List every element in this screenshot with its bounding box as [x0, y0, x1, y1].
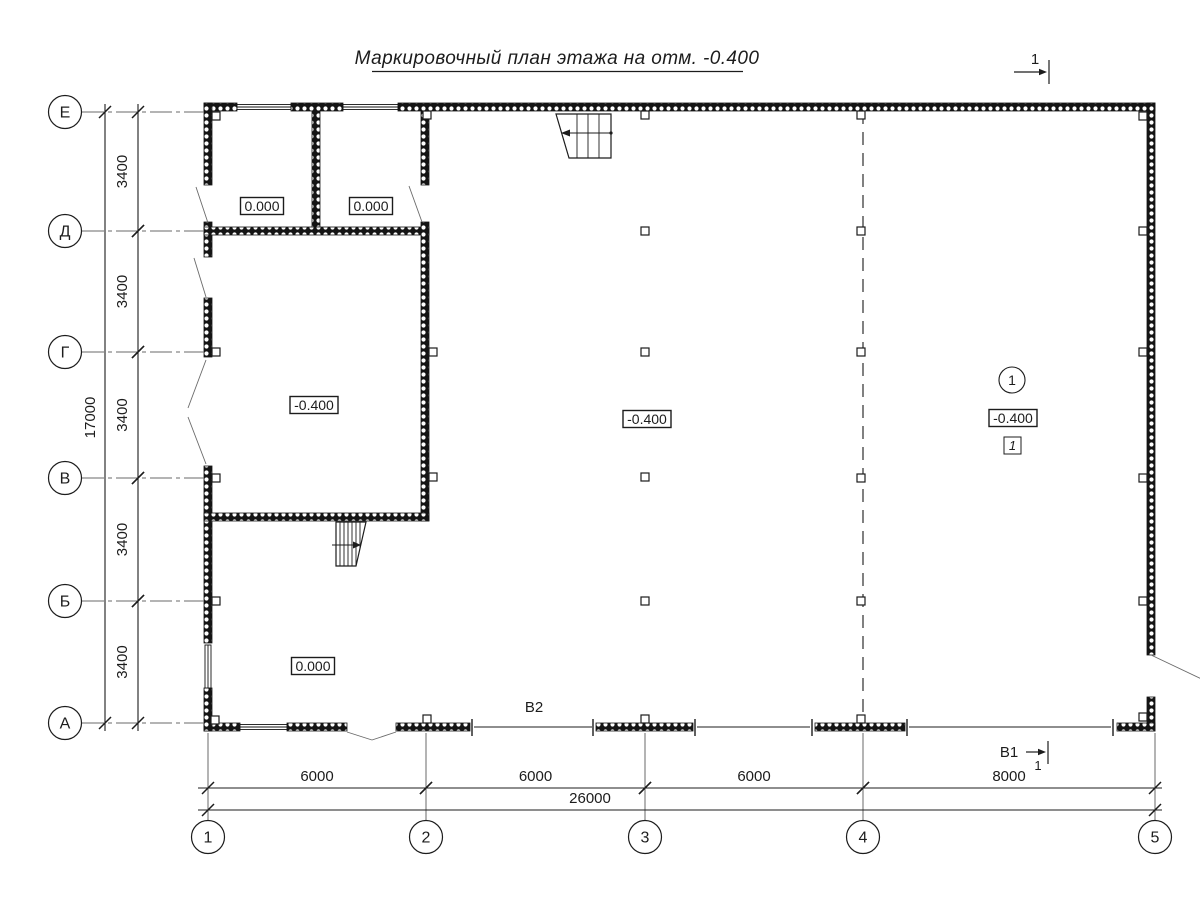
wall-left-4: [204, 466, 212, 643]
interior-walls: [204, 111, 429, 521]
break-line-1: [196, 187, 208, 223]
column-marker: [641, 227, 649, 235]
break-line-4: [188, 417, 206, 464]
column-marker: [212, 348, 220, 356]
door-break-right: [372, 732, 396, 740]
dim-label-left: 3400: [114, 523, 131, 556]
wall-int-vert-2a: [421, 111, 429, 185]
column-marker: [857, 715, 865, 723]
elevation-mark-value: 0.000: [295, 658, 330, 674]
column-marker: [423, 111, 431, 119]
axis-label-row: В: [60, 471, 71, 488]
axis-label-row: Д: [60, 224, 71, 241]
axis-label-col: 3: [641, 830, 650, 847]
dim-label-bottom: 8000: [992, 768, 1025, 785]
wall-int-horiz-1: [204, 227, 429, 235]
b1-arrowhead: [1038, 749, 1046, 755]
wall-left-3: [204, 298, 212, 357]
column-marker: [212, 474, 220, 482]
column-marker: [1139, 227, 1147, 235]
dim-label-left: 3400: [114, 155, 131, 188]
column-marker: [857, 597, 865, 605]
b1-label: В1: [1000, 744, 1018, 761]
section-mark-top-label: 1: [1031, 51, 1039, 68]
column-marker: [641, 597, 649, 605]
column-marker: [1139, 112, 1147, 120]
axis-label-row: А: [60, 716, 71, 733]
dim-label-left-total: 17000: [82, 397, 99, 439]
break-line-3: [188, 360, 206, 408]
column-marker: [641, 111, 649, 119]
break-line-5: [409, 186, 422, 222]
dim-label-bottom-total: 26000: [569, 790, 611, 807]
axis-label-col: 1: [204, 830, 213, 847]
stairs-top: [556, 114, 613, 158]
b2-label: В2: [525, 699, 543, 716]
column-marker: [1139, 713, 1147, 721]
col-axes: 12345: [192, 733, 1172, 854]
stairs-top-treads: [577, 114, 599, 158]
stairs-top-outline: [556, 114, 611, 158]
axis-label-col: 5: [1151, 830, 1160, 847]
wall-bottom-corner-right: [1117, 723, 1155, 731]
dim-label-bottom: 6000: [519, 768, 552, 785]
axis-label-row: Е: [60, 105, 71, 122]
wall-right: [1147, 103, 1155, 655]
opening-break-lines: [188, 186, 1200, 693]
dim-label-left: 3400: [114, 398, 131, 431]
elevation-mark-value: -0.400: [294, 397, 334, 413]
dim-label-left: 3400: [114, 275, 131, 308]
column-marker: [1139, 348, 1147, 356]
wall-int-vert-1: [312, 111, 320, 227]
column-marker: [857, 348, 865, 356]
column-marker: [641, 348, 649, 356]
dim-label-left: 3400: [114, 645, 131, 678]
column-marker: [1139, 474, 1147, 482]
column-marker: [857, 111, 865, 119]
wall-bottom-5: [815, 723, 905, 731]
axis-label-row: Г: [61, 345, 70, 362]
column-marker: [212, 597, 220, 605]
wall-bottom-2: [287, 723, 347, 731]
axis-label-row: Б: [60, 594, 71, 611]
column-marker: [1139, 597, 1147, 605]
drawing-sheet: Маркировочный план этажа на отм. -0.400: [0, 0, 1200, 900]
dim-label-bottom: 6000: [300, 768, 333, 785]
break-line-6: [1151, 655, 1200, 693]
door-break-left: [347, 732, 372, 740]
stairs-bottom: [332, 522, 366, 566]
elevation-mark-value: -0.400: [993, 410, 1033, 426]
wall-bottom-4: [596, 723, 693, 731]
column-marker: [212, 112, 220, 120]
wall-top-2: [291, 103, 343, 111]
wall-top-3: [398, 103, 1155, 111]
axis-label-col: 2: [422, 830, 431, 847]
column-marker: [641, 715, 649, 723]
elevation-mark-value: -0.400: [627, 411, 667, 427]
wall-bottom-3: [396, 723, 470, 731]
dim-label-bottom: 6000: [737, 768, 770, 785]
wall-left-1: [204, 103, 212, 185]
axis-label-col: 4: [859, 830, 868, 847]
column-marker: [857, 227, 865, 235]
room-type-label: 1: [1009, 438, 1016, 453]
elevation-marks: 0.0000.000-0.400-0.400-0.4000.000: [241, 198, 1038, 675]
room-number-label: 1: [1008, 372, 1016, 388]
drawing-title: Маркировочный план этажа на отм. -0.400: [355, 48, 760, 69]
stairs-top-arrow-dot: [609, 131, 612, 134]
break-line-2: [194, 258, 206, 297]
elevation-mark-value: 0.000: [353, 198, 388, 214]
column-marker: [429, 348, 437, 356]
column-marker: [641, 473, 649, 481]
wall-int-vert-2b: [421, 222, 429, 521]
wall-int-horiz-2: [204, 513, 429, 521]
floor-plan-canvas: Маркировочный план этажа на отм. -0.400: [0, 0, 1200, 900]
column-marker: [423, 715, 431, 723]
column-marker: [429, 473, 437, 481]
stairs-bottom-outline: [336, 522, 366, 566]
b1-detail-label: 1: [1034, 758, 1041, 773]
column-marker: [211, 716, 219, 724]
section-mark-top: 1: [1014, 51, 1049, 84]
column-marker: [857, 474, 865, 482]
elevation-mark-value: 0.000: [244, 198, 279, 214]
section-mark-top-arrowhead: [1039, 69, 1047, 75]
